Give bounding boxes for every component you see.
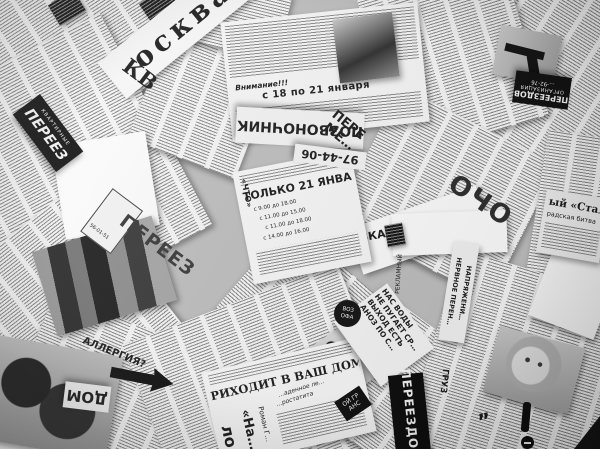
dom-fragment: ДОМ [63,381,112,412]
lo-vertical-text: ло [217,423,241,449]
gruz-text: ГРУЗ [437,368,449,393]
stamp-line2: ОФА [340,312,354,320]
stalingrad-headline: ый «Стал радская битва [536,189,600,263]
dom-text: ДОМ [66,386,109,409]
pereezdov-text: ПЕРЕЕЗДОВ [398,368,421,449]
portrait-photo [332,13,399,84]
dot-slot [524,442,531,444]
newspaper-collage-photo: осква КВ КВАРТИРНЫЕ ПЕРЕЕЗ Внимание!!! с… [0,0,600,449]
tolko-announcement: ТОЛЬКО 21 ЯНВАРЯ с 9.00 до 18.00 с 11.00… [232,150,372,285]
newsprint-text-block [541,221,600,256]
gun-barrel-silhouette [504,43,545,60]
exclamation-dot-graphic [521,436,534,449]
chto-text: «ЧТО» [240,178,255,208]
reklamnyi-text: РЕКЛАМНЫЙ [394,254,404,294]
